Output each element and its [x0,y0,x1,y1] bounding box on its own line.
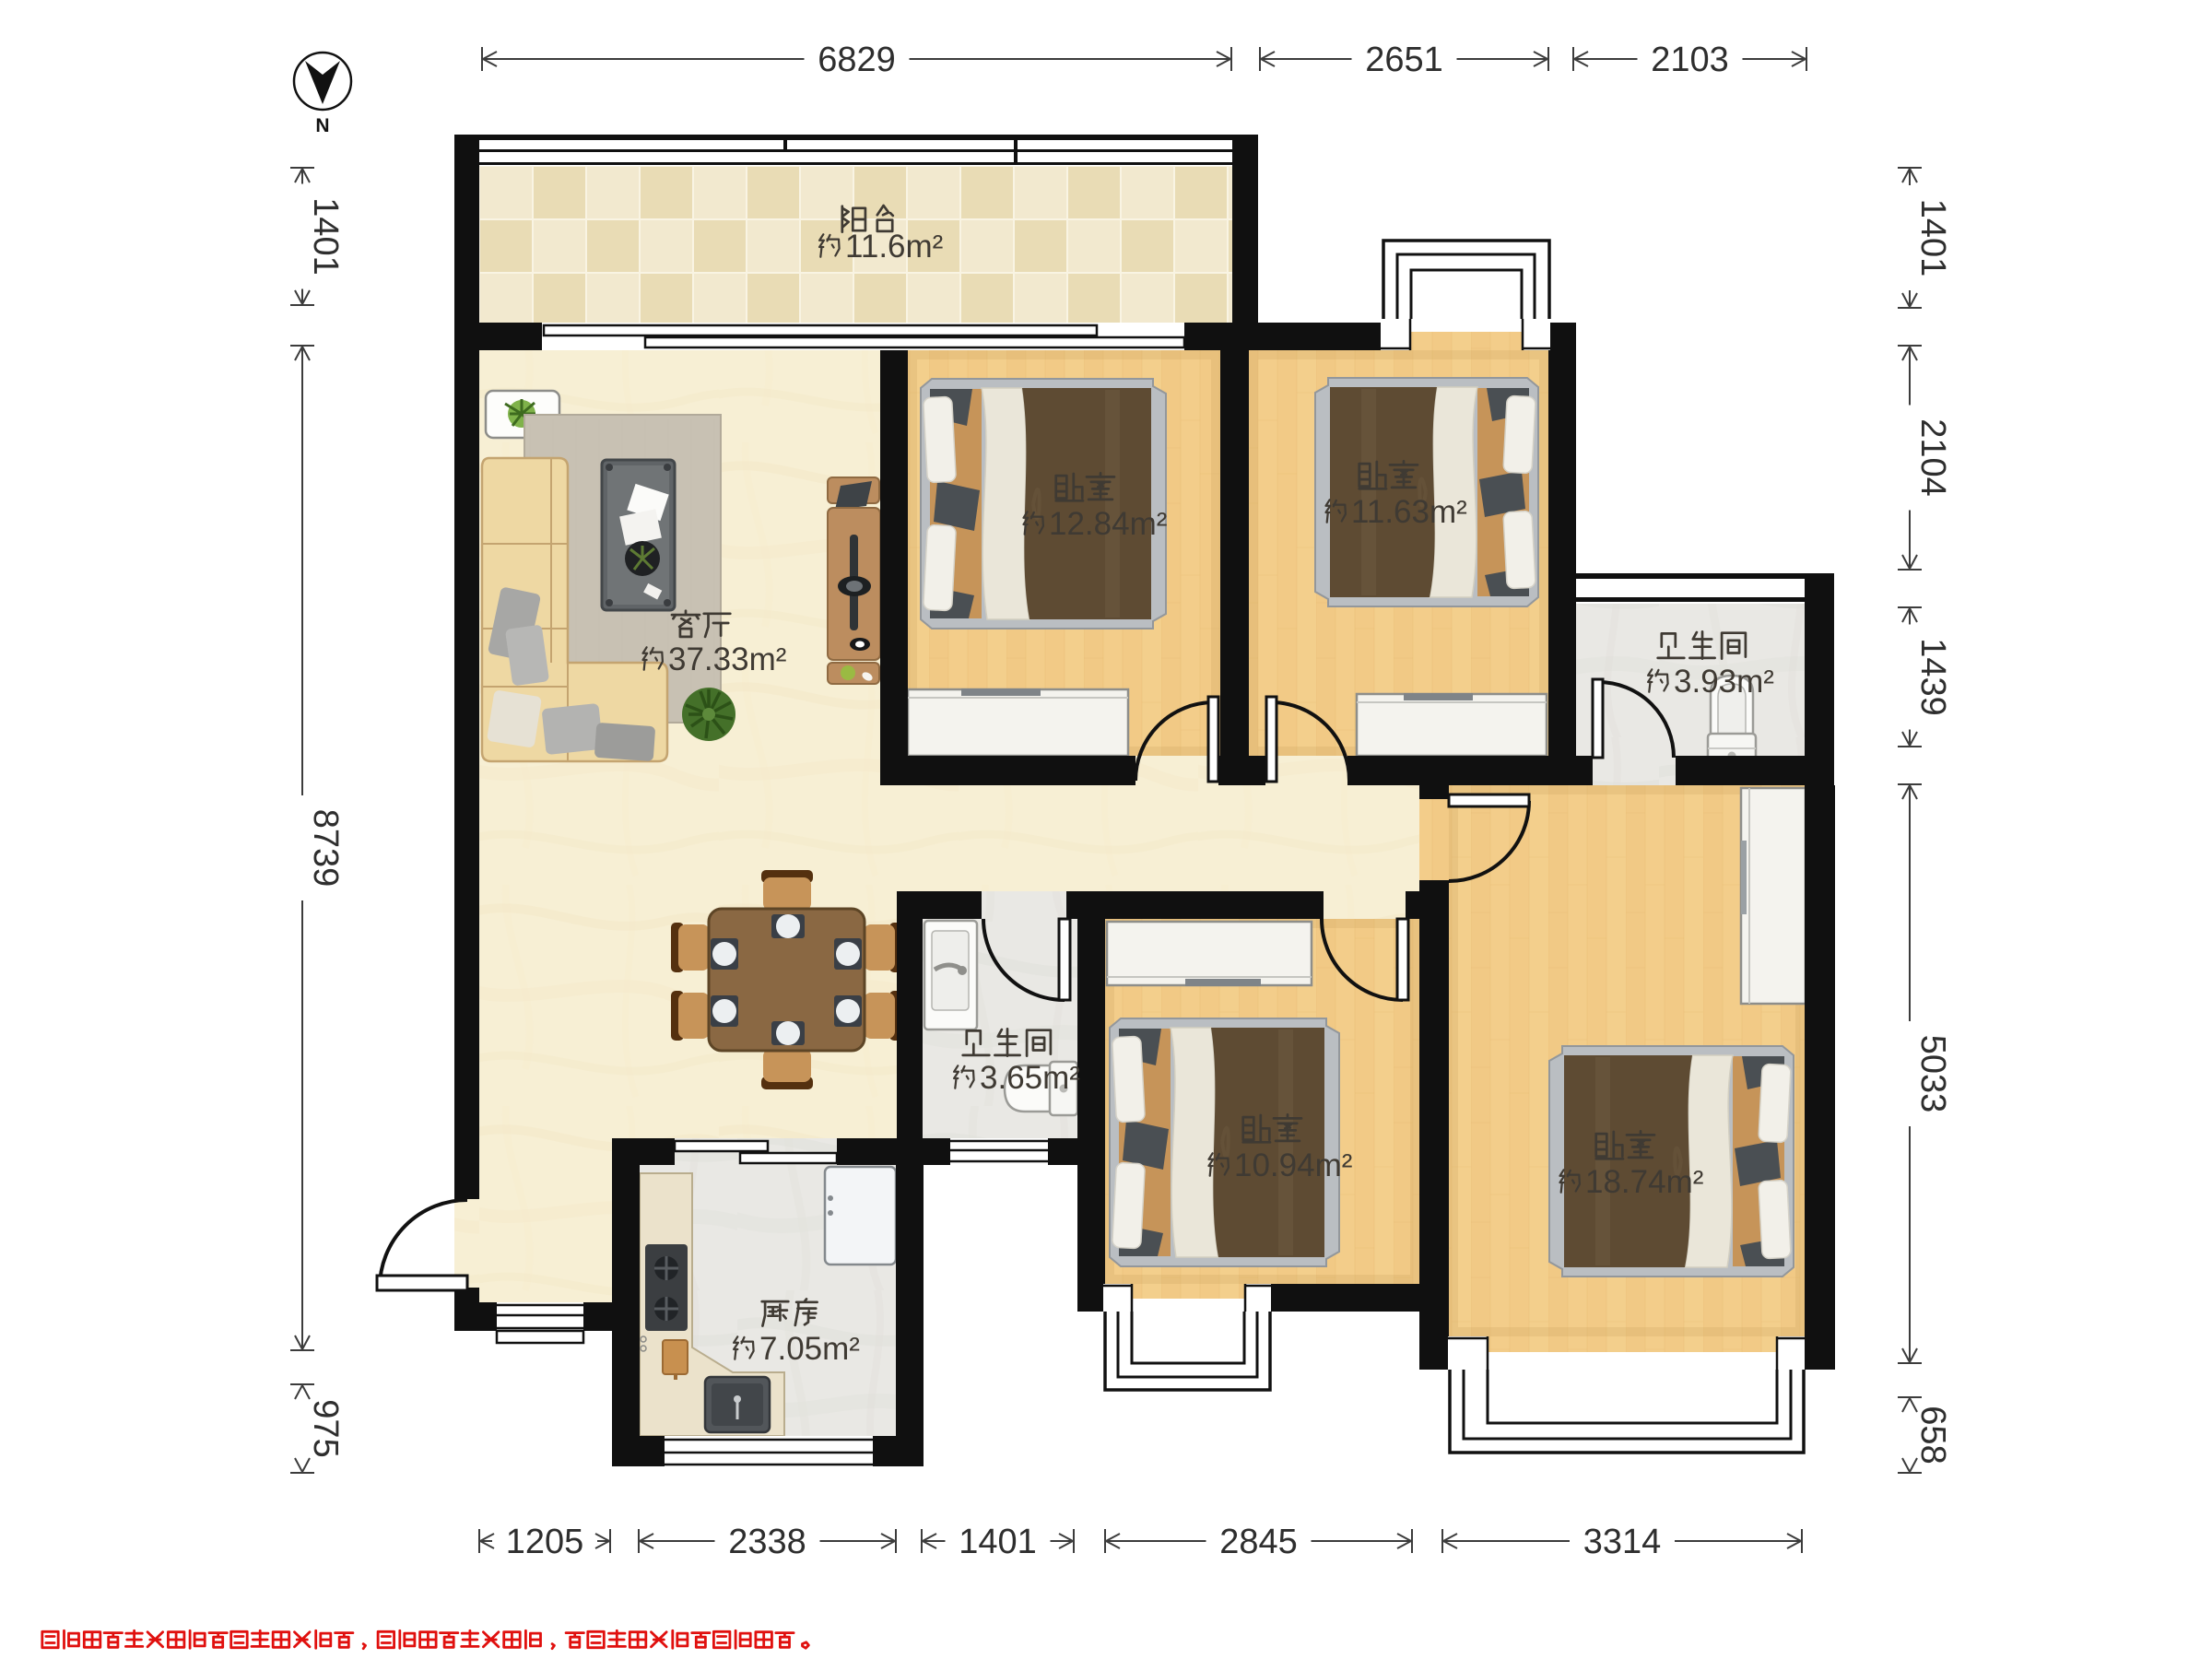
svg-text:3.93m²: 3.93m² [1674,664,1774,700]
svg-text:975: 975 [306,1399,345,1457]
svg-text:2651: 2651 [1365,41,1443,79]
svg-text:3314: 3314 [1583,1523,1662,1561]
svg-text:8739: 8739 [306,809,345,888]
svg-text:2845: 2845 [1219,1523,1298,1561]
svg-text:N: N [315,115,329,136]
svg-text:5033: 5033 [1913,1035,1952,1113]
svg-text:12.84m²: 12.84m² [1049,506,1167,542]
svg-text:2104: 2104 [1913,418,1952,497]
svg-text:1439: 1439 [1913,638,1952,716]
svg-text:10.94m²: 10.94m² [1234,1147,1352,1183]
svg-text:37.33m²: 37.33m² [668,641,786,677]
svg-text:1205: 1205 [506,1523,584,1561]
svg-text:3.65m²: 3.65m² [980,1060,1080,1096]
svg-text:1401: 1401 [306,197,345,276]
svg-text:1401: 1401 [1913,199,1952,277]
svg-text:2103: 2103 [1651,41,1729,79]
svg-text:7.05m²: 7.05m² [759,1331,860,1367]
svg-text:11.63m²: 11.63m² [1351,494,1467,530]
svg-text:2338: 2338 [728,1523,806,1561]
svg-text:6829: 6829 [818,41,896,79]
svg-text:658: 658 [1913,1406,1952,1464]
svg-text:11.6m²: 11.6m² [845,229,943,265]
svg-text:1401: 1401 [959,1523,1037,1561]
svg-text:18.74m²: 18.74m² [1585,1164,1703,1200]
